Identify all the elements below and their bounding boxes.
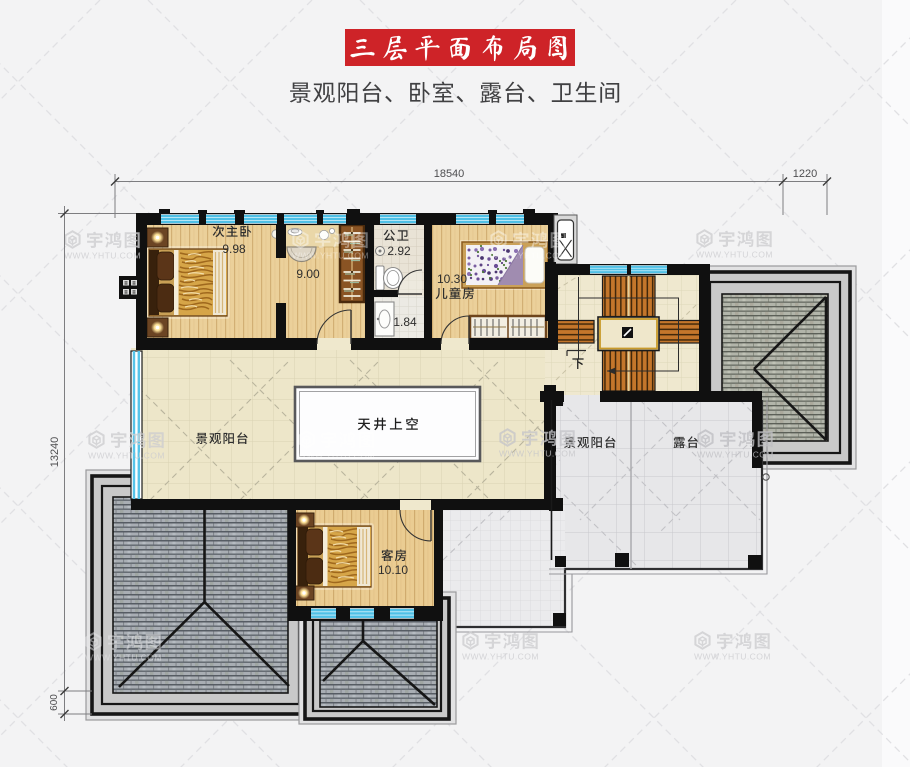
svg-text:WWW.YHTU.COM: WWW.YHTU.COM bbox=[292, 251, 369, 261]
svg-text:2.92: 2.92 bbox=[387, 244, 411, 258]
svg-text:WWW.YHTU.COM: WWW.YHTU.COM bbox=[298, 451, 375, 461]
svg-text:WWW.YHTU.COM: WWW.YHTU.COM bbox=[85, 653, 162, 663]
svg-text:9.00: 9.00 bbox=[296, 267, 320, 281]
svg-text:WWW.YHTU.COM: WWW.YHTU.COM bbox=[64, 251, 141, 261]
svg-text:1220: 1220 bbox=[793, 168, 817, 180]
svg-text:WWW.YHTU.COM: WWW.YHTU.COM bbox=[499, 449, 576, 459]
svg-text:13240: 13240 bbox=[49, 437, 61, 468]
svg-text:WWW.YHTU.COM: WWW.YHTU.COM bbox=[697, 450, 774, 460]
svg-text:18540: 18540 bbox=[434, 168, 465, 180]
svg-text:WWW.YHTU.COM: WWW.YHTU.COM bbox=[696, 250, 773, 260]
svg-text:10.30: 10.30 bbox=[437, 272, 467, 286]
svg-text:WWW.YHTU.COM: WWW.YHTU.COM bbox=[462, 652, 539, 662]
svg-text:9.98: 9.98 bbox=[222, 242, 246, 256]
svg-text:WWW.YHTU.COM: WWW.YHTU.COM bbox=[490, 251, 567, 261]
svg-text:600: 600 bbox=[49, 694, 60, 711]
svg-text:WWW.YHTU.COM: WWW.YHTU.COM bbox=[694, 652, 771, 662]
svg-text:10.10: 10.10 bbox=[378, 563, 408, 577]
svg-text:1.84: 1.84 bbox=[393, 315, 417, 329]
svg-text:WWW.YHTU.COM: WWW.YHTU.COM bbox=[88, 451, 165, 461]
